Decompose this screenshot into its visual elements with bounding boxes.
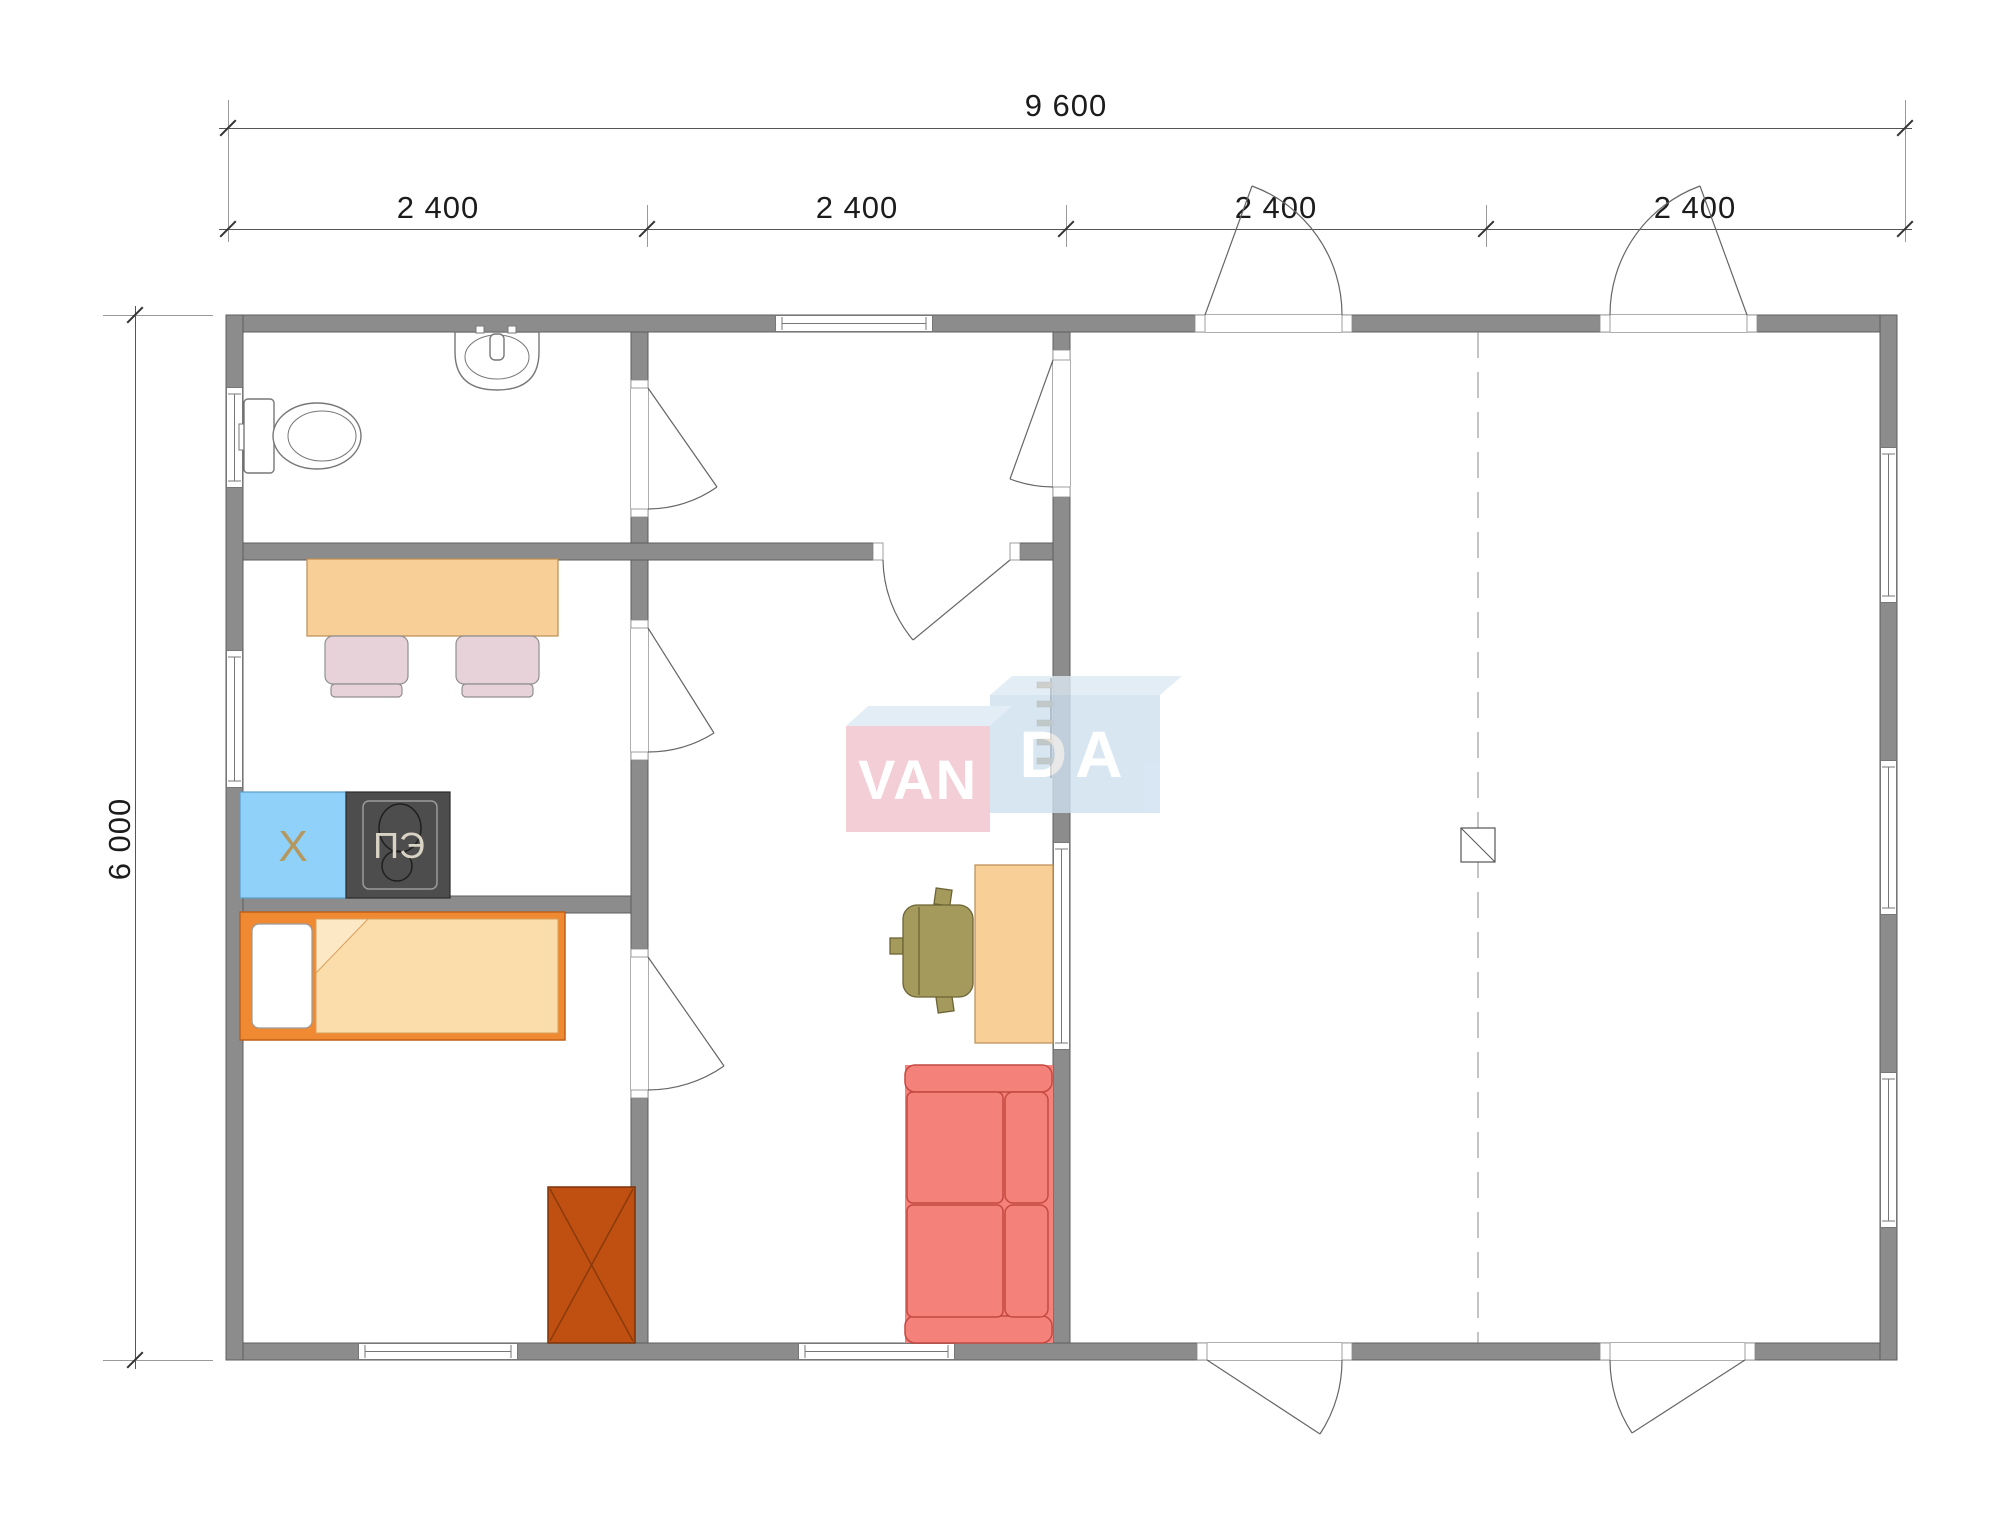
- door-jambs: [631, 315, 1757, 1360]
- door-swing-icon-terrace-bottom-1: [1207, 1360, 1342, 1434]
- window-icon-kitchen: [227, 651, 243, 788]
- window-icon-living: [799, 1344, 955, 1360]
- window-icon-terrace-3: [1881, 1073, 1897, 1228]
- door-swing-icon-terrace-top-1: [1205, 186, 1342, 315]
- door-swing-icon-bathroom: [648, 388, 717, 509]
- toilet-icon: [239, 399, 361, 473]
- floor-plan-drawing: Х ПЭ: [0, 0, 2000, 1524]
- door-swing-icon-terrace-entry: [1010, 360, 1053, 487]
- office-chair-icon: [890, 888, 973, 1013]
- desk-icon: [975, 865, 1053, 1043]
- door-swing-icon-terrace-bottom-2: [1610, 1360, 1745, 1433]
- fridge-label: Х: [278, 822, 307, 871]
- door-swing-icon-terrace-top-2: [1610, 186, 1747, 315]
- stove-icon: ПЭ: [346, 792, 450, 898]
- fridge-icon: Х: [240, 792, 346, 898]
- wall-partition-stub: [1020, 543, 1053, 560]
- wall-ladder-icon: [1037, 678, 1052, 778]
- window-icon-terrace-1: [1881, 448, 1897, 603]
- stove-label: ПЭ: [373, 825, 425, 866]
- pillow: [252, 924, 312, 1028]
- chair-icon-2: [456, 636, 539, 697]
- door-swing-icon-bedroom: [648, 957, 724, 1090]
- wall-partition-bath-hall: [243, 543, 873, 560]
- dining-table: [307, 559, 558, 636]
- bed-icon: [240, 912, 565, 1040]
- door-swings: [648, 186, 1747, 1434]
- sink-icon: [455, 326, 539, 390]
- sofa-icon: [905, 1065, 1053, 1343]
- door-swing-icon-kitchen: [648, 628, 714, 752]
- window-icon-entry: [776, 316, 933, 332]
- window-icon-desk-wall: [1054, 843, 1070, 1050]
- wardrobe-icon: [548, 1187, 635, 1343]
- chair-icon-1: [325, 636, 408, 697]
- window-icon-terrace-2: [1881, 761, 1897, 915]
- door-swing-icon-hall-living: [883, 560, 1010, 640]
- column-post-icon: [1461, 828, 1495, 862]
- floor-plan-canvas: 9 600 2 400 2 400 2 400 2 400 6 000: [0, 0, 2000, 1524]
- window-icon-bedroom: [359, 1344, 518, 1360]
